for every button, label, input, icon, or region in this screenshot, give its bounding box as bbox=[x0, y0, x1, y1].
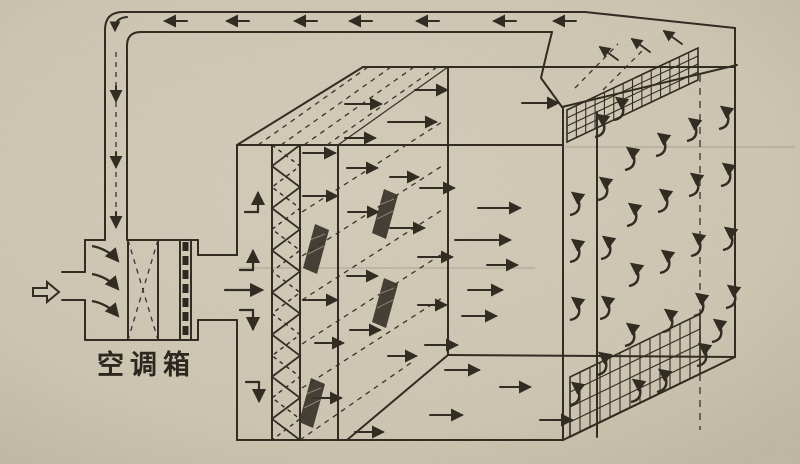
cleanroom-airflow-diagram: 空调箱 bbox=[0, 0, 800, 464]
scanned-diagram-page: 空调箱 bbox=[0, 0, 800, 464]
ahu-label: 空调箱 bbox=[97, 349, 196, 381]
